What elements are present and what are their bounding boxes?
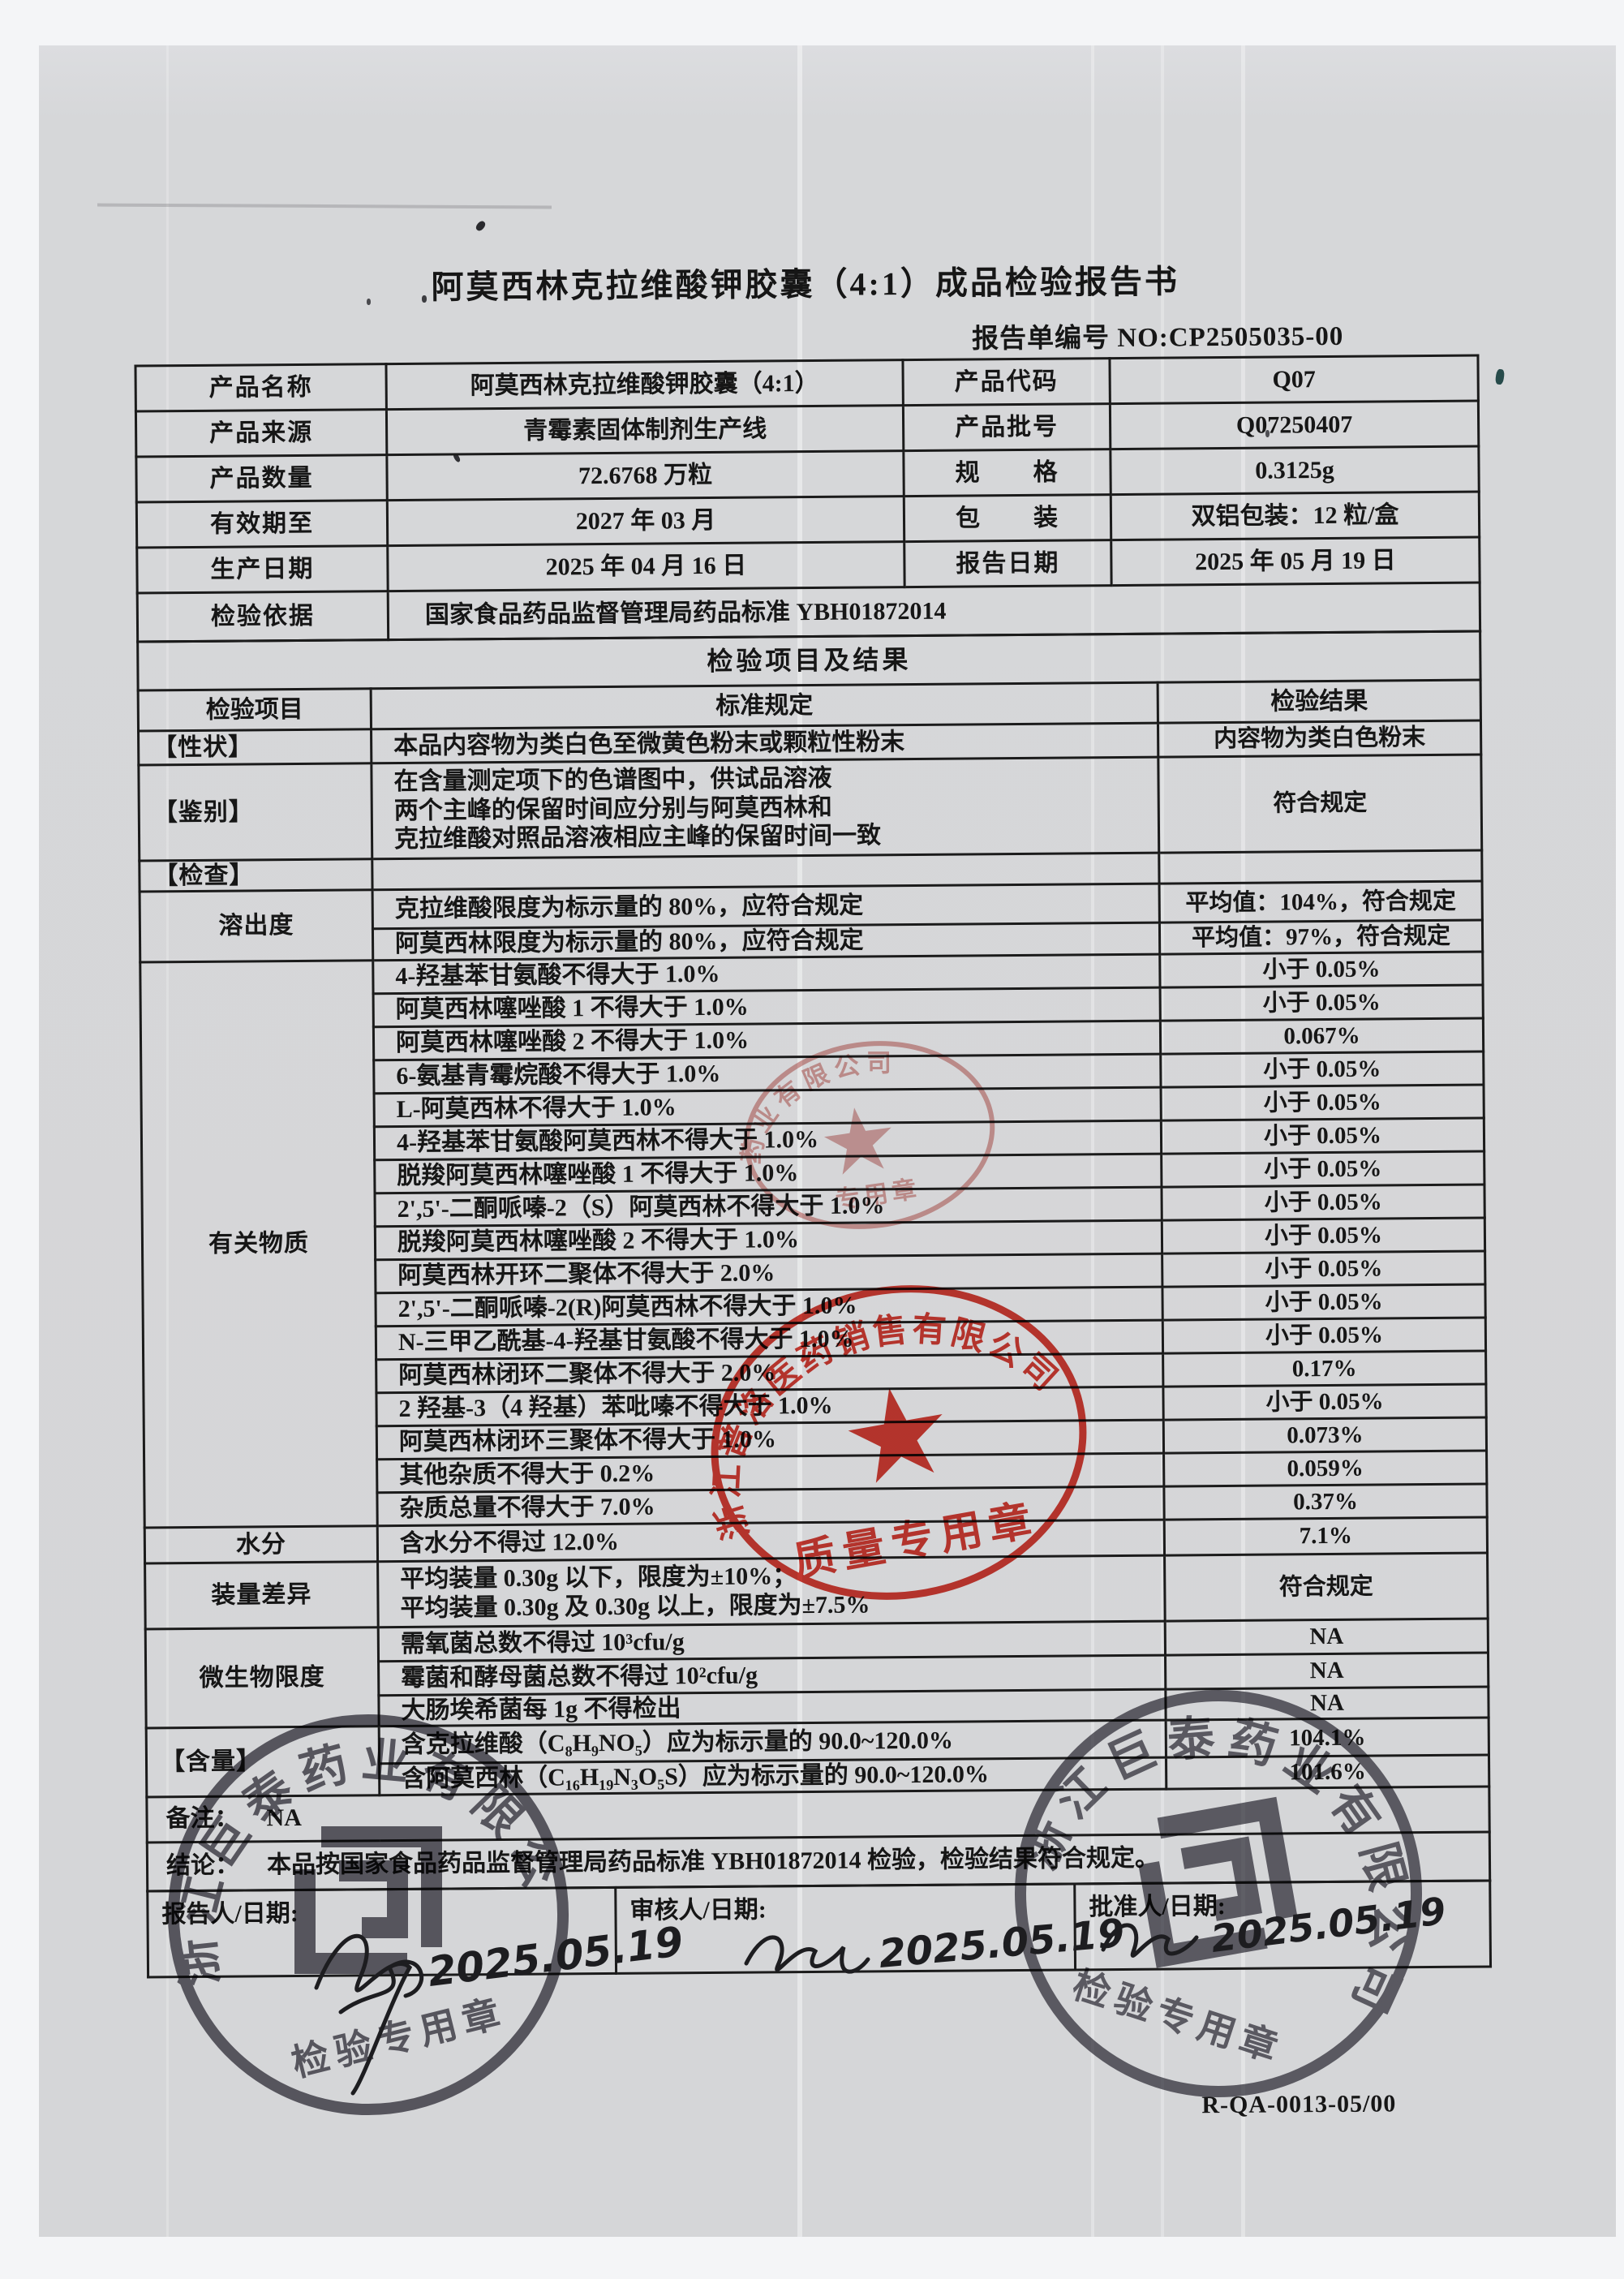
result-cell (1159, 850, 1482, 884)
item-cell: 装量差异 (145, 1562, 379, 1629)
results-table: 检验项目及结果 检验项目 标准规定 检验结果 【性状】本品内容物为类白色至微黄色… (136, 630, 1491, 1893)
field-value: Q07250407 (1110, 401, 1478, 449)
result-cell: 小于 0.05% (1161, 1118, 1484, 1154)
signature-row: 报告人/日期: 审核人/日期: 批准人/日期: (148, 1881, 1491, 1977)
field-label: 产品来源 (135, 410, 386, 457)
result-row: 【鉴别】在含量测定项下的色谱图中，供试品溶液 两个主峰的保留时间应分别与阿莫西林… (139, 755, 1482, 861)
field-label: 产品批号 (903, 404, 1110, 451)
page-title: 阿莫西林克拉维酸钾胶囊（4:1）成品检验报告书 (0, 252, 1618, 312)
scanned-report-page: 阿莫西林克拉维酸钾胶囊（4:1）成品检验报告书 报告单编号 NO:CP25050… (0, 0, 1624, 2279)
item-cell: 有关物质 (140, 961, 377, 1528)
result-cell: 小于 0.05% (1162, 1151, 1484, 1187)
result-cell: 符合规定 (1158, 755, 1482, 853)
item-cell: 微生物限度 (145, 1628, 379, 1729)
form-code: R-QA-0013-05/00 (1201, 2090, 1396, 2119)
item-cell: 【检查】 (140, 859, 372, 892)
field-label: 规 格 (904, 449, 1111, 497)
item-cell: 水分 (144, 1526, 377, 1563)
document-content: 阿莫西林克拉维酸钾胶囊（4:1）成品检验报告书 报告单编号 NO:CP25050… (0, 0, 1624, 2279)
conclusion-label: 结论： (166, 1852, 239, 1880)
report-number: 报告单编号 NO:CP2505035-00 (972, 314, 1344, 356)
result-cell: 平均值：97%，符合规定 (1159, 920, 1482, 954)
result-cell: 小于 0.05% (1160, 985, 1483, 1021)
result-cell: NA (1166, 1653, 1489, 1689)
result-cell: 小于 0.05% (1162, 1218, 1484, 1253)
result-row: 装量差异平均装量 0.30g 以下，限度为±10%； 平均装量 0.30g 及 … (145, 1553, 1489, 1629)
field-label: 产品数量 (136, 455, 387, 502)
column-header-item: 检验项目 (138, 689, 371, 731)
result-cell: 平均值：104%，符合规定 (1159, 881, 1482, 922)
result-cell: 7.1% (1164, 1517, 1487, 1555)
result-cell: 小于 0.05% (1162, 1284, 1485, 1320)
field-label: 生产日期 (137, 546, 388, 593)
result-cell: 小于 0.05% (1161, 1085, 1484, 1120)
field-label: 有效期至 (136, 501, 387, 548)
result-cell: 内容物为类白色粉末 (1158, 720, 1480, 757)
field-value: 72.6768 万粒 (387, 451, 904, 501)
spec-cell: 克拉维酸限度为标示量的 80%，应符合规定 (372, 884, 1159, 930)
result-cell: 小于 0.05% (1162, 1185, 1484, 1220)
result-cell: 符合规定 (1165, 1553, 1489, 1621)
result-cell: NA (1166, 1687, 1489, 1721)
result-cell: 小于 0.05% (1160, 952, 1483, 987)
result-cell: 0.059% (1164, 1451, 1487, 1486)
result-cell: 101.6% (1166, 1755, 1489, 1789)
field-value: 青霉素固体制剂生产线 (386, 406, 903, 455)
report-tables: 产品名称阿莫西林克拉维酸钾胶囊（4:1）产品代码Q07产品来源青霉素固体制剂生产… (134, 355, 1489, 1978)
field-value: Q07 (1110, 355, 1478, 404)
conclusion-value: 本品按国家食品药品监督管理局药品标准 YBH01872014 检验，检验结果符合… (267, 1845, 1159, 1879)
field-value: 2025 年 05 月 19 日 (1111, 537, 1480, 586)
field-label: 产品代码 (903, 359, 1110, 406)
item-cell: 【含量】 (146, 1726, 380, 1797)
remark-value: NA (266, 1804, 302, 1831)
item-cell: 【性状】 (139, 729, 372, 765)
reporter-cell: 报告人/日期: (148, 1887, 617, 1977)
field-label: 检验依据 (137, 591, 388, 642)
reviewer-cell: 审核人/日期: (616, 1884, 1076, 1973)
product-info-table: 产品名称阿莫西林克拉维酸钾胶囊（4:1）产品代码Q07产品来源青霉素固体制剂生产… (134, 355, 1481, 643)
signatures-table: 报告人/日期: 审核人/日期: 批准人/日期: (146, 1879, 1492, 1978)
result-cell: 0.067% (1160, 1018, 1483, 1054)
field-value: 2027 年 03 月 (387, 497, 904, 546)
field-label: 包 装 (904, 495, 1111, 542)
result-cell: 小于 0.05% (1163, 1384, 1486, 1420)
spec-cell: 含克拉维酸（C₈H₉NO₅）应为标示量的 90.0~120.0% (379, 1720, 1166, 1764)
field-value: 0.3125g (1111, 446, 1479, 495)
spec-cell: 平均装量 0.30g 以下，限度为±10%； 平均装量 0.30g 及 0.30… (378, 1555, 1166, 1628)
item-cell: 溶出度 (140, 890, 373, 962)
item-cell: 【鉴别】 (139, 763, 372, 861)
result-cell: 0.17% (1163, 1351, 1486, 1387)
result-cell: 0.073% (1163, 1417, 1486, 1453)
field-label: 产品名称 (135, 364, 386, 411)
result-cell: 0.37% (1164, 1484, 1487, 1520)
result-cell: 小于 0.05% (1161, 1051, 1484, 1087)
remark-label: 备注： (165, 1805, 238, 1833)
field-value: 双铝包装：12 粒/盒 (1111, 492, 1479, 540)
result-cell: 小于 0.05% (1162, 1251, 1485, 1287)
result-cell: 小于 0.05% (1162, 1318, 1485, 1353)
spec-cell: 含水分不得过 12.0% (377, 1520, 1164, 1562)
field-value: 阿莫西林克拉维酸钾胶囊（4:1） (386, 360, 903, 410)
column-header-result: 检验结果 (1158, 680, 1480, 723)
result-cell: 104.1% (1166, 1718, 1489, 1757)
result-cell: NA (1165, 1619, 1488, 1655)
field-label: 报告日期 (904, 540, 1111, 587)
field-value: 2025 年 04 月 16 日 (388, 542, 904, 591)
approver-cell: 批准人/日期: (1075, 1881, 1491, 1970)
spec-cell: 在含量测定项下的色谱图中，供试品溶液 两个主峰的保留时间应分别与阿莫西林和 克拉… (372, 757, 1159, 859)
column-header-spec: 标准规定 (371, 682, 1158, 729)
